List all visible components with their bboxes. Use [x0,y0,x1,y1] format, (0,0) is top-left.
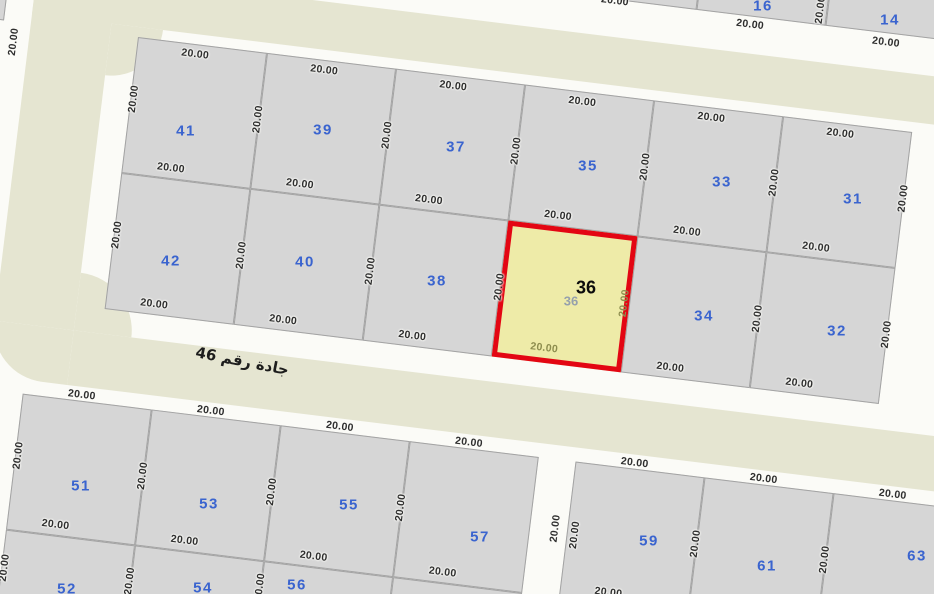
dim-label: 20.00 [131,294,176,313]
parcel-number-16: 16 [753,0,773,15]
dim-label: 20.00 [148,158,193,177]
parcel-number-38: 38 [427,273,447,290]
dim-label: 20.00 [420,562,465,581]
dim-label: 20.00 [431,76,476,95]
parcel-number-55: 55 [339,497,359,514]
parcel-53[interactable]: 20.00 20.00 20.00 [135,409,281,561]
dim-label: 20.00 [291,547,336,566]
parcel-33[interactable]: 20.00 20.00 20.00 [637,100,783,252]
dim-label: 20.00 [689,108,734,127]
parcel-number-36: 36 [576,278,596,299]
parcel-number-37: 37 [446,139,466,156]
parcel-number-57: 57 [470,529,490,546]
dim-label: 20.00 [390,326,435,345]
dim-label: 20.00 [586,583,631,594]
parcel-number-51: 51 [71,478,91,495]
dim-label: 20.00 [172,44,217,63]
dim-label: 20.00 [33,515,78,534]
parcel-61[interactable]: 20.00 20.00 20.00 [688,477,834,594]
dim-label: 20.00 [818,124,863,143]
parcel-number-32: 32 [827,323,847,340]
parcel-42[interactable]: 20.00 20.00 20.00 [105,173,251,325]
parcel-number-61: 61 [757,558,777,575]
dim-label: 20.00 [893,176,912,221]
parcel-top-sliver[interactable] [567,0,712,10]
dim-label: 20.00 [8,433,27,478]
parcel-63[interactable]: 20.00 [817,493,934,594]
parcel-number-56: 56 [287,577,307,594]
parcel-number-41: 41 [176,123,196,140]
dim-label: 20.00 [261,310,306,329]
dim-label: 20.00 [777,374,822,393]
dim-label: 20.00 [521,338,566,357]
dim-label: 20.00 [793,238,838,257]
dim-label: 20.00 [535,206,580,225]
parcel-number-52: 52 [57,581,77,594]
parcel-number-39: 39 [313,122,333,139]
dim-label: 20.00 [546,506,565,551]
dim-label: 20.00 [302,60,347,79]
dim-label: 20.00 [406,190,451,209]
dim-label: 20.00 [0,545,14,590]
parcel-57[interactable]: 20.00 20.00 [393,441,539,593]
dim-label: 20.00 [107,212,126,257]
dim-label: 20.00 [277,174,322,193]
parcel-number-54: 54 [193,580,213,594]
map-viewport[interactable]: 20.00 20.00 20.00 20.00 20.00 20.00 20.0… [0,0,934,594]
parcel-number-42: 42 [161,253,181,270]
parcel-41[interactable]: 20.00 20.00 20.00 20.00 [121,37,267,189]
parcel-number-40: 40 [295,254,315,271]
dim-label: 20.00 [648,358,693,377]
parcel-32[interactable]: 20.00 20.00 [750,252,896,404]
parcel-number-33: 33 [712,174,732,191]
dim-label: 20.00 [162,531,207,550]
parcel-number-53: 53 [199,496,219,513]
parcel-number-59: 59 [639,533,659,550]
parcel-number-34: 34 [694,308,714,325]
parcel-number-31: 31 [843,191,863,208]
parcel-number-35: 35 [578,158,598,175]
dim-label: 20.00 [560,92,605,111]
parcel-sliver-west[interactable] [0,0,15,21]
parcel-51[interactable]: 20.00 20.00 20.00 20.00 [6,394,152,546]
dim-label: 20.00 [863,33,908,52]
road-corner-band [0,321,74,385]
parcel-number-14: 14 [880,12,900,29]
dim-label: 20.00 [877,312,896,357]
dim-label: 20.00 [592,0,637,10]
parcel-31[interactable]: 20.00 20.00 20.00 [766,116,912,268]
dim-label: 20.00 [124,76,143,121]
dim-label: 20.00 [664,222,709,241]
parcel-number-63: 63 [907,548,927,565]
parcel-55[interactable]: 20.00 20.00 20.00 [264,425,410,577]
dim-label: 20.00 [4,19,23,64]
